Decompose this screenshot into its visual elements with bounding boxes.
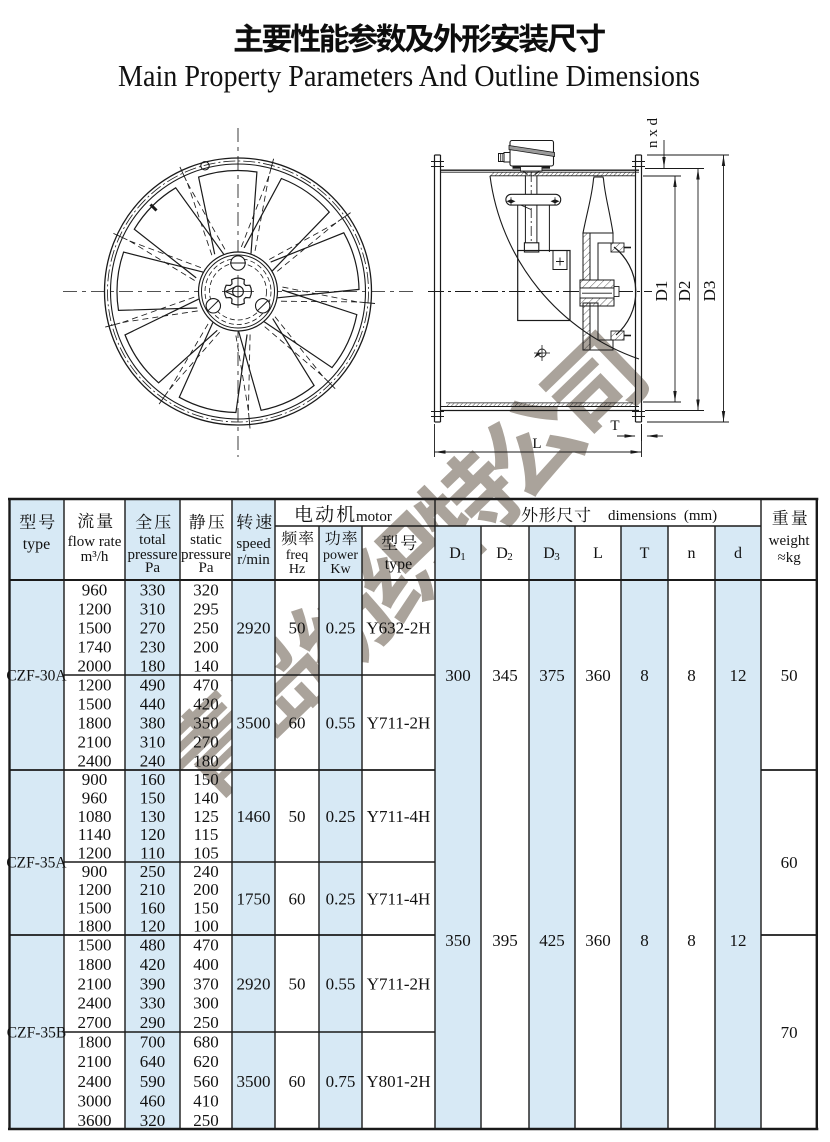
svg-text:320: 320 — [193, 580, 219, 599]
svg-text:400: 400 — [193, 955, 219, 974]
svg-text:490: 490 — [140, 675, 166, 694]
svg-text:8: 8 — [687, 931, 696, 950]
svg-text:200: 200 — [193, 880, 219, 899]
svg-text:300: 300 — [445, 666, 471, 685]
svg-text:395: 395 — [492, 931, 518, 950]
svg-text:115: 115 — [194, 825, 219, 844]
svg-text:480: 480 — [140, 936, 166, 955]
svg-text:250: 250 — [140, 862, 166, 881]
svg-text:680: 680 — [193, 1033, 219, 1052]
svg-text:370: 370 — [193, 974, 219, 993]
svg-text:1200: 1200 — [78, 675, 112, 694]
svg-text:D1: D1 — [652, 281, 671, 302]
svg-text:60: 60 — [289, 1072, 306, 1091]
svg-text:speed: speed — [236, 536, 271, 552]
svg-text:0.75: 0.75 — [326, 1072, 356, 1091]
svg-text:330: 330 — [140, 994, 166, 1013]
svg-text:1200: 1200 — [78, 880, 112, 899]
svg-text:1200: 1200 — [78, 599, 112, 618]
svg-text:2400: 2400 — [78, 994, 112, 1013]
svg-text:2920: 2920 — [237, 618, 271, 637]
svg-text:n x d: n x d — [645, 118, 661, 149]
svg-text:L: L — [532, 436, 541, 452]
svg-text:3500: 3500 — [237, 1072, 271, 1091]
svg-text:470: 470 — [193, 675, 219, 694]
svg-text:270: 270 — [193, 732, 219, 751]
svg-text:140: 140 — [193, 788, 219, 807]
svg-text:D2: D2 — [675, 281, 694, 302]
svg-text:power: power — [323, 548, 358, 563]
svg-text:8: 8 — [687, 666, 696, 685]
svg-text:900: 900 — [82, 862, 108, 881]
svg-text:Pa: Pa — [199, 560, 214, 576]
svg-text:250: 250 — [193, 1111, 219, 1130]
svg-text:1460: 1460 — [237, 807, 271, 826]
svg-text:360: 360 — [585, 666, 611, 685]
svg-text:Y801-2H: Y801-2H — [366, 1072, 430, 1091]
svg-text:1800: 1800 — [78, 917, 112, 936]
svg-text:1750: 1750 — [237, 889, 271, 908]
svg-text:≈kg: ≈kg — [777, 550, 801, 566]
svg-text:2400: 2400 — [78, 1072, 112, 1091]
svg-text:CZF-35A: CZF-35A — [6, 855, 67, 872]
svg-text:125: 125 — [193, 807, 219, 826]
svg-text:Y632-2H: Y632-2H — [366, 618, 430, 637]
svg-text:250: 250 — [193, 618, 219, 637]
svg-text:1740: 1740 — [78, 637, 112, 656]
svg-text:2920: 2920 — [237, 974, 271, 993]
svg-text:3000: 3000 — [78, 1091, 112, 1110]
svg-text:180: 180 — [140, 656, 166, 675]
svg-text:295: 295 — [193, 599, 219, 618]
svg-text:CZF-30A: CZF-30A — [6, 668, 67, 685]
svg-text:2100: 2100 — [78, 732, 112, 751]
svg-text:weight: weight — [769, 533, 811, 549]
svg-text:290: 290 — [140, 1013, 166, 1032]
svg-text:110: 110 — [140, 844, 165, 863]
svg-text:Main Property Parameters And O: Main Property Parameters And Outline Dim… — [118, 58, 700, 93]
svg-text:230: 230 — [140, 637, 166, 656]
svg-text:Y711-4H: Y711-4H — [367, 807, 431, 826]
svg-text:120: 120 — [140, 825, 166, 844]
svg-text:420: 420 — [140, 955, 166, 974]
svg-text:60: 60 — [289, 889, 306, 908]
svg-text:static: static — [190, 532, 222, 548]
svg-text:12: 12 — [730, 666, 747, 685]
svg-text:410: 410 — [193, 1091, 219, 1110]
svg-text:8: 8 — [640, 931, 649, 950]
svg-text:Y711-2H: Y711-2H — [367, 713, 431, 732]
svg-text:2: 2 — [507, 551, 513, 563]
svg-text:1200: 1200 — [78, 844, 112, 863]
svg-text:12: 12 — [730, 931, 747, 950]
svg-text:total: total — [139, 532, 166, 548]
svg-text:d: d — [734, 545, 742, 562]
svg-text:420: 420 — [193, 694, 219, 713]
svg-text:310: 310 — [140, 732, 166, 751]
svg-text:0.55: 0.55 — [326, 713, 356, 732]
svg-text:130: 130 — [140, 807, 166, 826]
svg-text:390: 390 — [140, 974, 166, 993]
svg-text:Y711-4H: Y711-4H — [367, 889, 431, 908]
svg-text:700: 700 — [140, 1033, 166, 1052]
svg-text:dimensions (mm): dimensions (mm) — [608, 508, 717, 524]
svg-text:8: 8 — [640, 666, 649, 685]
svg-text:470: 470 — [193, 936, 219, 955]
svg-text:180: 180 — [193, 751, 219, 770]
svg-text:900: 900 — [82, 770, 108, 789]
svg-text:270: 270 — [140, 618, 166, 637]
svg-text:310: 310 — [140, 599, 166, 618]
svg-text:360: 360 — [585, 931, 611, 950]
svg-text:L: L — [593, 545, 603, 562]
svg-text:2700: 2700 — [78, 1013, 112, 1032]
svg-text:60: 60 — [781, 853, 798, 872]
svg-text:105: 105 — [193, 844, 219, 863]
svg-text:50: 50 — [289, 974, 306, 993]
svg-text:1500: 1500 — [78, 898, 112, 917]
svg-text:0.25: 0.25 — [326, 807, 356, 826]
svg-text:3500: 3500 — [237, 713, 271, 732]
svg-text:D3: D3 — [700, 281, 719, 302]
svg-text:1800: 1800 — [78, 713, 112, 732]
svg-text:320: 320 — [140, 1111, 166, 1130]
svg-text:2100: 2100 — [78, 974, 112, 993]
svg-text:2400: 2400 — [78, 751, 112, 770]
svg-text:0.25: 0.25 — [326, 618, 356, 637]
svg-text:250: 250 — [193, 1013, 219, 1032]
svg-text:240: 240 — [140, 751, 166, 770]
svg-text:D: D — [449, 545, 461, 562]
svg-text:freq: freq — [286, 548, 309, 563]
svg-text:50: 50 — [289, 618, 306, 637]
svg-text:Pa: Pa — [145, 560, 160, 576]
svg-text:140: 140 — [193, 656, 219, 675]
svg-text:motor: motor — [356, 509, 392, 525]
svg-text:flow rate: flow rate — [68, 534, 122, 550]
svg-text:2100: 2100 — [78, 1052, 112, 1071]
svg-text:70: 70 — [781, 1023, 798, 1042]
svg-text:Kw: Kw — [330, 562, 351, 577]
svg-text:1080: 1080 — [78, 807, 112, 826]
svg-text:m³/h: m³/h — [81, 549, 109, 565]
svg-text:T: T — [610, 418, 619, 434]
svg-text:960: 960 — [82, 788, 108, 807]
svg-text:150: 150 — [193, 770, 219, 789]
svg-text:620: 620 — [193, 1052, 219, 1071]
svg-text:n: n — [688, 545, 696, 562]
svg-text:330: 330 — [140, 580, 166, 599]
svg-text:1800: 1800 — [78, 1033, 112, 1052]
svg-text:460: 460 — [140, 1091, 166, 1110]
svg-text:50: 50 — [289, 807, 306, 826]
svg-text:345: 345 — [492, 666, 518, 685]
svg-text:3600: 3600 — [78, 1111, 112, 1130]
svg-text:D: D — [496, 545, 508, 562]
svg-text:CZF-35B: CZF-35B — [7, 1025, 66, 1042]
svg-text:590: 590 — [140, 1072, 166, 1091]
svg-text:350: 350 — [445, 931, 471, 950]
svg-text:640: 640 — [140, 1052, 166, 1071]
svg-text:D: D — [543, 545, 555, 562]
svg-text:1500: 1500 — [78, 694, 112, 713]
svg-text:150: 150 — [193, 898, 219, 917]
svg-text:160: 160 — [140, 770, 166, 789]
svg-text:240: 240 — [193, 862, 219, 881]
svg-text:1: 1 — [460, 551, 466, 563]
svg-text:0.55: 0.55 — [326, 974, 356, 993]
svg-text:120: 120 — [140, 917, 166, 936]
svg-text:560: 560 — [193, 1072, 219, 1091]
svg-text:type: type — [23, 536, 51, 553]
svg-text:1800: 1800 — [78, 955, 112, 974]
svg-text:350: 350 — [193, 713, 219, 732]
svg-text:50: 50 — [781, 666, 798, 685]
svg-text:1500: 1500 — [78, 936, 112, 955]
svg-text:Hz: Hz — [289, 562, 305, 577]
svg-text:960: 960 — [82, 580, 108, 599]
svg-text:160: 160 — [140, 898, 166, 917]
svg-text:440: 440 — [140, 694, 166, 713]
svg-text:210: 210 — [140, 880, 166, 899]
svg-text:300: 300 — [193, 994, 219, 1013]
svg-text:3: 3 — [554, 551, 560, 563]
svg-text:100: 100 — [193, 917, 219, 936]
svg-text:0.25: 0.25 — [326, 889, 356, 908]
svg-text:425: 425 — [539, 931, 565, 950]
svg-text:200: 200 — [193, 637, 219, 656]
svg-text:380: 380 — [140, 713, 166, 732]
svg-text:Y711-2H: Y711-2H — [367, 974, 431, 993]
svg-text:r/min: r/min — [237, 552, 270, 568]
svg-text:1500: 1500 — [78, 618, 112, 637]
svg-text:375: 375 — [539, 666, 565, 685]
svg-text:1140: 1140 — [78, 825, 111, 844]
svg-text:T: T — [640, 545, 650, 562]
svg-text:60: 60 — [289, 713, 306, 732]
svg-text:type: type — [385, 556, 413, 573]
svg-text:150: 150 — [140, 788, 166, 807]
svg-text:2000: 2000 — [78, 656, 112, 675]
